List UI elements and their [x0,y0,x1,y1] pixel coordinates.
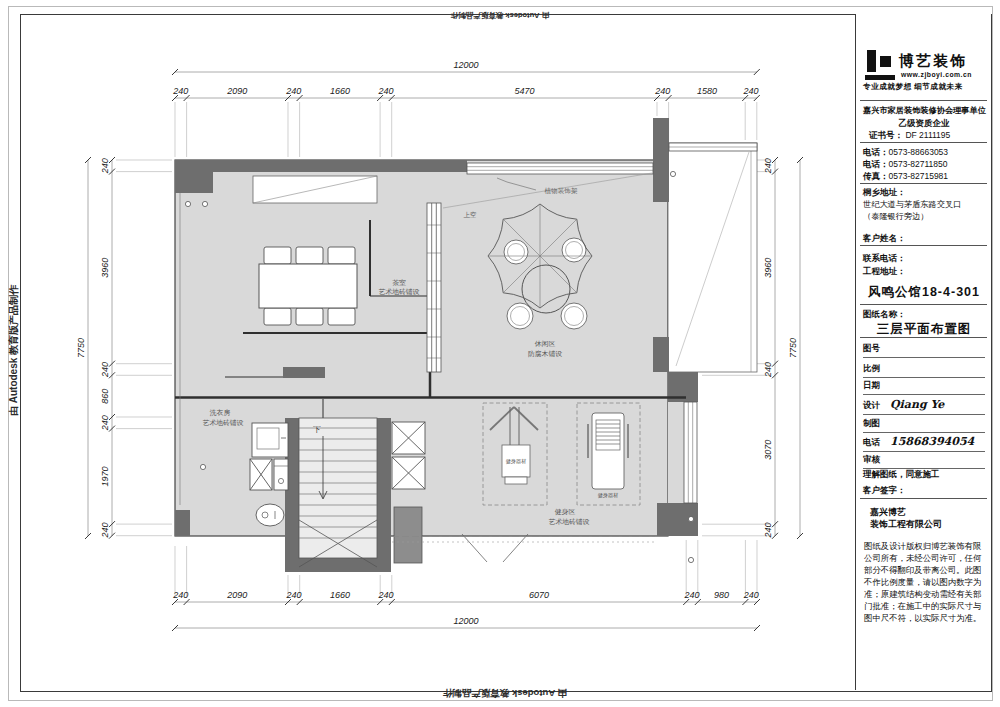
room-finish-gym: 艺术地砖铺设 [549,518,590,526]
skylight [253,176,377,203]
figure-number-label: 图号 [863,343,880,355]
tel2-label: 电话： [863,159,889,169]
figure-number-row: 图号 [863,343,985,358]
dim-label: 2090 [226,590,247,600]
dim-label: 240 [172,86,188,96]
design-label: 设计 [863,400,880,412]
dim-label: 1660 [330,86,350,96]
dim-label: 240 [742,86,758,96]
phone-label: 电话 [863,437,880,449]
copyright-disclaimer: 图纸及设计版权归博艺装饰有限公司所有，未经公司许可，任何部分不得翻印及带离公司。… [864,540,984,624]
scale-label: 比例 [863,363,880,375]
dining-set [259,247,357,325]
dim-label: 3960 [100,258,110,278]
grade-line: 乙级资质企业 [863,118,985,130]
branch-address-line2: （泰隆银行旁边） [863,211,985,222]
dim-label: 240 [763,158,773,174]
dim-label: 5470 [514,86,534,96]
dim-label: 240 [285,590,301,600]
equipment-label: 健身器材 [506,458,527,465]
cert-line: 证书号： DF 2111195 [863,130,985,142]
title-block: 博艺装饰 www.zjboyi.com.cn 专业成就梦想 细节成就未来 嘉兴市… [855,14,991,690]
dim-label: 240 [172,590,188,600]
tel1-line: 电话：0573-88663053 [863,147,985,159]
brand-name: 博艺装饰 [899,52,967,71]
void-above-label: 上空 [463,211,476,218]
dim-label: 980 [714,590,729,600]
agreement-line: 理解图纸，同意施工 [863,469,985,481]
contact-phone-label: 联系电话： [863,253,985,265]
room-finish-laundry: 艺术地砖铺设 [203,419,244,427]
brand-website: www.zjboyi.com.cn [901,71,972,78]
tel1-label: 电话： [863,147,889,157]
room-finish-tea: 艺术地砖铺设 [379,288,420,296]
dim-label: 240 [654,86,670,96]
divider [860,245,987,246]
scale-row: 比例 [863,363,985,378]
tel2-line: 电话：0573-82711850 [863,159,985,171]
divider [860,304,987,305]
room-finish-leisure: 防腐木铺设 [528,350,562,358]
plant-shelf-label: 植物装饰架 [545,187,578,195]
dim-label: 240 [100,522,110,538]
design-row: 设计 Qiang Ye [863,398,985,415]
room-label-tea: 茶室 [392,279,406,286]
cert-number: DF 2111195 [905,130,950,140]
dim-label: 240 [763,362,773,378]
fax-label: 传真： [863,171,889,181]
designer-name: Qiang Ye [890,398,944,411]
association-line: 嘉兴市家居装饰装修协会理事单位 [863,105,985,116]
company-line2: 装饰工程有限公司 [870,518,985,531]
staircase: 下 [299,418,377,567]
tel2-value: 0573-82711850 [889,159,948,169]
dim-label: 2090 [226,86,247,96]
dim-label: 1660 [330,590,350,600]
room-label-laundry: 洗衣房 [209,409,231,417]
branch-address-label: 桐乡地址： [863,187,985,199]
dim-label: 3960 [763,258,773,278]
stairs-down-label: 下 [313,425,321,434]
boyi-logo-icon [865,50,895,80]
phone-value: 15868394054 [890,435,974,448]
fax-line: 传真：0573-82715981 [863,171,985,183]
dim-label: 860 [100,389,110,404]
divider [860,100,987,101]
drawing-name-label: 图纸名称： [863,309,985,321]
customer-sign-label: 客户签字： [863,485,985,497]
dim-label: 240 [377,86,393,96]
dim-left-total: 7750 [76,338,86,358]
fax-value: 0573-82715981 [889,171,949,181]
dim-label: 240 [100,362,110,378]
divider [860,337,987,338]
dim-label: 1580 [697,86,717,96]
date-row: 日期 [863,380,985,395]
site-address-label: 工程地址： [863,266,985,278]
room-label-leisure: 休闲区 [535,340,556,348]
floor-plan: 12000 240 2090 240 1660 240 5470 240 158… [0,0,860,707]
dim-label: 240 [743,590,759,600]
brand-tagline: 专业成就梦想 细节成就未来 [863,82,963,92]
divider [860,498,987,499]
dim-label: 6070 [529,590,549,600]
draft-row: 制图 [863,418,985,433]
customer-name-label: 客户姓名： [863,233,985,245]
dim-label: 1970 [100,466,110,486]
dim-label: 240 [377,590,393,600]
divider [860,142,987,143]
equipment-label: 健身器材 [598,492,619,499]
room-label-gym: 健身区 [555,508,576,516]
drawing-name: 三层平面布置图 [863,321,985,338]
phone-row: 电话 15868394054 [863,435,985,452]
drawing-sheet: 由 Autodesk 教育版产品制作 由 Autodesk 教育版产品制作 由 … [0,0,1000,707]
tel1-value: 0573-88663053 [889,147,949,157]
dim-label: 3070 [763,440,773,460]
review-row: 审核 [863,454,985,469]
dim-top-total: 12000 [453,60,478,70]
dim-label: 240 [285,86,301,96]
dim-label: 240 [100,158,110,174]
dim-label: 240 [100,415,110,431]
dim-right-total: 7750 [788,338,798,358]
divider [860,183,987,184]
draft-label: 制图 [863,418,880,430]
date-label: 日期 [863,380,880,392]
dim-label: 240 [683,590,699,600]
project-name: 风鸣公馆18-4-301 [863,284,985,301]
review-label: 审核 [863,454,880,466]
cert-label: 证书号： [869,130,903,140]
branch-address-line1: 世纪大道与茅盾东路交叉口 [863,199,985,210]
dim-label: 240 [763,522,773,538]
dim-bottom-total: 12000 [453,616,478,626]
